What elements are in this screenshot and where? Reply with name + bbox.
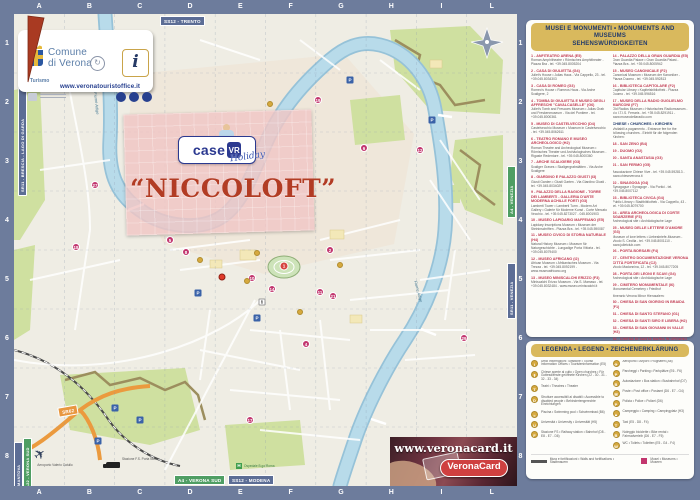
verona-tourist-map: ABCDEFGHIL ABCDEFGHIL 12345678 12345678 [0, 0, 700, 500]
train-station-icon [106, 462, 120, 468]
legend-label: Università • University • Universität (H… [541, 421, 597, 425]
legend-item: ✉Poste • Post office • Postamt (D6 - E7 … [613, 390, 690, 397]
grid-letter: L [467, 1, 517, 13]
grid-letter: C [115, 487, 165, 499]
legend-item: iUffici Informazioni Turistiche • Touris… [531, 360, 608, 368]
grid-number: 8 [516, 427, 525, 486]
entry-title: 31 - CHIESA DI SANTO STEFANO (G1) [613, 312, 690, 316]
entry-body: Romeo's House • Romeos Haus - Via Arche … [531, 88, 608, 96]
monument-marker-17[interactable]: 17 [246, 416, 254, 424]
monument-entry: 29 - CIMITERO MONUMENTALE (I6)Monumental… [613, 283, 690, 291]
monument-entry: 8 - GIARDINO E PALAZZO GIUSTI (I3)Giusti… [531, 175, 608, 187]
monument-entry: 17 - MUSEO DELLA RADIO GUGLIELMO MARCONI… [613, 99, 690, 120]
grid-number: 3 [1, 132, 13, 191]
monument-entry: 2 - CASA DI GIULIETTA (G4)Juliet's House… [531, 69, 608, 81]
grid-letter: G [316, 1, 366, 13]
monument-entry: 13 - MUSEO MINISCALCHI ERIZZO (F3)Minisc… [531, 276, 608, 288]
park-marker[interactable]: P [95, 438, 102, 445]
monument-entry: 3 - CASA DI ROMEO (G3)Romeo's House • Ro… [531, 84, 608, 96]
monuments-header: MUSEI E MONUMENTI • MONUMENTS AND MUSEUM… [531, 23, 689, 51]
monument-entry: 9 - PALAZZO DELLA RAGIONE - TORRE DEI LA… [531, 190, 608, 215]
legend-item: FStazione FS • Railway station • Bahnhof… [531, 431, 608, 439]
monument-marker-29[interactable]: 29 [460, 334, 468, 342]
legend-label: Poste • Post office • Postamt (D6 - E7 -… [623, 390, 684, 394]
grid-number: 2 [516, 73, 525, 132]
monument-entry: 21 - SAN FERMO (G5) [613, 163, 690, 167]
grid-letter: D [165, 1, 215, 13]
legend-label: Autostazione • Bus station • Busbahnhof … [623, 380, 687, 384]
monument-entry: 31 - CHIESA DI SANTO STEFANO (G1) [613, 312, 690, 316]
entry-body: Roman Theatre and Archeological Museum •… [531, 146, 608, 158]
legend-extra: Musei • Museums • Museen [641, 458, 689, 466]
entry-body: Canonical Museum • Museum der Kanoniker … [613, 73, 690, 81]
monument-entry: 16 - BIBLIOTECA CAPITOLARE (F2)Capitular… [613, 84, 690, 96]
entry-title: 24 - AREA ARCHEOLOGICA DI CORTE SGARZERI… [613, 211, 690, 220]
bus-icon: B [613, 380, 620, 387]
monument-marker-6[interactable]: 6 [360, 144, 368, 152]
entry-body: Roman Amphitheatre • Römisches Amphithea… [531, 58, 608, 66]
monument-entry: Associazione Chiese Vive - tel. +39.045.… [613, 170, 690, 178]
monument-entry: 30 - CHIESA DI SAN GIORGIO IN BRAIDA (F1… [613, 300, 690, 309]
monument-entry: 6 - TEATRO ROMANO E MUSEO ARCHEOLOGICO (… [531, 137, 608, 158]
entry-body: African Museum • Afrikanisches Museum - … [531, 261, 608, 273]
monument-marker-12[interactable]: 12 [416, 146, 424, 154]
entry-body: Monumental Cemetery • Friedhof [613, 287, 690, 291]
legend-item: BAutostazione • Bus station • Busbahnhof… [613, 380, 690, 387]
monuments-column-1: 1 - ANFITEATRO ARENA (E5)Roman Amphithea… [531, 54, 608, 342]
plane-icon: ✈ [613, 360, 620, 367]
legend-item: ≈Piscina • Swimming pool • Schwimmbad (B… [531, 411, 608, 418]
church-icon: ✝ [531, 371, 538, 378]
entry-body: Museum of love letters • Liebesbriefe-Mu… [613, 235, 690, 247]
legend-item: TTaxi (E5 - D8 - F4) [613, 421, 690, 428]
entry-title: 9 - PALAZZO DELLA RAGIONE - TORRE DEI LA… [531, 190, 608, 203]
sign-sr11-venezia: SR11 - VENEZIA [507, 263, 516, 319]
monument-entry: Itinerario Verona Minor Hierusalem: [613, 294, 690, 298]
grid-rows-right: 12345678 [516, 14, 525, 486]
grid-number: 3 [516, 132, 525, 191]
hospital-label: Ospedale B.go Roma [244, 464, 274, 468]
tourist-info-icon: i [122, 49, 149, 77]
monument-marker-2[interactable]: 2 [326, 246, 334, 254]
monument-entry: 7 - ARCHE SCALIGERE (G3)Scaliger Graves … [531, 160, 608, 172]
entry-title: 17 - MUSEO DELLA RADIO GUGLIELMO MARCONI… [613, 99, 690, 108]
grid-letter: G [316, 487, 366, 499]
airport-label: Aeroporto Valerio Catullo [20, 464, 90, 468]
legend-column-2: ✈Aeroporto • Airport • Flughafen (A8)PPa… [613, 360, 690, 453]
sign-modena: SS12 - MODENA [228, 475, 274, 485]
legend-label: Polizia • Police • Polizei (D6) [623, 400, 663, 404]
monument-entry: 18 - SAN ZENO (B4) [613, 142, 690, 146]
theatre-icon: T [531, 385, 538, 392]
grid-letter: F [265, 487, 315, 499]
gold-marker[interactable] [297, 309, 303, 315]
entry-body: Juliet's Tomb and Frescoes Museum • Juli… [531, 107, 608, 119]
grid-letter: D [165, 487, 215, 499]
bike-icon: B [613, 431, 620, 438]
park-marker[interactable]: P [112, 405, 119, 412]
grid-letter: A [14, 1, 64, 13]
monument-marker-21[interactable]: 21 [329, 292, 337, 300]
grid-number: 5 [1, 250, 13, 309]
monument-entry: 26 - PORTA BORSARI (F4) [613, 249, 690, 253]
entry-body: Juliet's House • Julias Haus - Via Cappe… [531, 73, 608, 81]
grid-letter: H [366, 1, 416, 13]
entry-title: 30 - CHIESA DI SAN GIORGIO IN BRAIDA (F1… [613, 300, 690, 309]
sign-trento: SS12 - TRENTO [160, 16, 205, 26]
monument-entry: 19 - DUOMO (G2) [613, 149, 690, 153]
monument-marker-11[interactable]: 11 [316, 288, 324, 296]
grid-letter: E [215, 487, 265, 499]
location-arrow [14, 14, 59, 89]
monument-entry: CHIESE • CHURCHES • KIRCHENVisitabili a … [613, 122, 690, 139]
entry-title: 25 - MUSEO DELLE LETTERE D'AMORE (G3) [613, 226, 690, 235]
wc-icon: W [613, 442, 620, 449]
police-icon: P [613, 400, 620, 407]
grid-letter: B [64, 487, 114, 499]
university-icon: U [531, 421, 538, 428]
entry-title: 4 - TOMBA DI GIULIETTA E MUSEO DEGLI AFF… [531, 99, 608, 108]
grid-number: 7 [516, 368, 525, 427]
monument-marker-14[interactable]: 14 [268, 285, 276, 293]
entry-title: 18 - SAN ZENO (B4) [613, 142, 690, 146]
monument-marker-19[interactable]: 19 [314, 96, 322, 104]
monument-entry: 4 - TOMBA DI GIULIETTA E MUSEO DEGLI AFF… [531, 99, 608, 120]
grid-number: 1 [1, 14, 13, 73]
grid-letter: B [64, 1, 114, 13]
monument-marker-4[interactable]: 4 [302, 340, 310, 348]
legend-extras: Mura e fortificazioni • Walls and fortif… [531, 454, 689, 465]
monument-marker-1[interactable]: 1 [280, 262, 289, 271]
grid-letters-top: ABCDEFGHIL [14, 1, 517, 13]
entry-body: Visitabili a pagamento - Entrance fee fo… [613, 127, 690, 139]
grid-number: 2 [1, 73, 13, 132]
legend-item: ▲Campeggio • Camping • Campingplatz (H3) [613, 410, 690, 417]
sign-a4-venezia: A4 - VENEZIA [507, 166, 516, 218]
grid-letter: I [416, 1, 466, 13]
sign-brescia: SR11 - BRESCIA - LAGO DI GARDA [18, 88, 27, 196]
monument-entry: 22 - SINAGOGA (G4)Synagogue • Synagoge -… [613, 181, 690, 193]
monument-entry: 14 - PALAZZO DELLA GRAN GUARDIA (E5)Gran… [613, 54, 690, 66]
grid-letter: I [416, 487, 466, 499]
monument-entry: 11 - MUSEO CIVICO DI STORIA NATURALE (H4… [531, 233, 608, 254]
grid-letter: L [467, 487, 517, 499]
parking-icon: P [613, 370, 620, 377]
grid-number: 4 [1, 191, 13, 250]
veronacard-logo: VeronaCard [440, 459, 508, 477]
legend-extra: Mura e fortificazioni • Walls and fortif… [531, 458, 631, 466]
legend-item: BNoleggio biciclette • Bike rental • Fah… [613, 431, 690, 439]
legend-extra-label: Mura e fortificazioni • Walls and fortif… [550, 458, 632, 466]
legend-item: DStrutture accessibili ai disabili • Acc… [531, 396, 608, 408]
legend-label: Aeroporto • Airport • Flughafen (A8) [623, 360, 673, 364]
grid-letter: A [14, 487, 64, 499]
entry-title: 10 - MUSEO LAPIDARIO MAFFEIANO (E5) [531, 218, 608, 222]
entry-title: 20 - SANTA ANASTASIA (G3) [613, 156, 690, 160]
train-icon: F [531, 431, 538, 438]
entry-body: Public Library • Stadtbibliothek - Via C… [613, 200, 690, 208]
monument-marker-27[interactable]: 27 [91, 181, 99, 189]
grid-number: 5 [516, 250, 525, 309]
monument-entry: 25 - MUSEO DELLE LETTERE D'AMORE (G3)Mus… [613, 226, 690, 247]
entry-body: Miniscalchi Erizzo Museum - Via S. Mamas… [531, 280, 608, 288]
gold-marker[interactable] [267, 101, 273, 107]
hospital-icon: H [236, 463, 242, 469]
tourist-office-url[interactable]: www.veronatouristoffice.it [60, 83, 140, 90]
entry-note: Associazione Chiese Vive - tel. +39.045.… [613, 170, 690, 178]
monument-marker-5[interactable]: 5 [166, 236, 174, 244]
sign-a4-verona-sud: A4 - VERONA SUD [174, 475, 225, 485]
legend-label: WC • Toilets • Toiletten (E5 - G4 - F4) [623, 442, 675, 446]
grid-number: 6 [1, 309, 13, 368]
entry-body: Castelvecchio Museum • Museum in Castelv… [531, 126, 608, 134]
entry-title: 6 - TEATRO ROMANO E MUSEO ARCHEOLOGICO (… [531, 137, 608, 146]
gold-marker[interactable] [337, 262, 343, 268]
legend-item: TTeatri • Theatres • Theater [531, 385, 608, 392]
monument-entry: 5 - MUSEO DI CASTELVECCHIO (D4)Castelvec… [531, 122, 608, 134]
legend-item: UUniversità • University • Universität (… [531, 421, 608, 428]
city-map[interactable]: Fiume Adige Fiume Adige SS12 - TRENTO SR… [14, 14, 517, 486]
entry-body: Archeological site • Archäologische Lage [613, 219, 690, 223]
tent-icon: ▲ [613, 410, 620, 417]
monument-entry: 1 - ANFITEATRO ARENA (E5)Roman Amphithea… [531, 54, 608, 66]
gold-marker[interactable] [197, 257, 203, 263]
entry-title: 11 - MUSEO CIVICO DI STORIA NATURALE (H4… [531, 233, 608, 242]
entry-body: Natural History Museum • Museum für Natu… [531, 242, 608, 254]
legend-label: Uffici Informazioni Turistiche • Tourist… [541, 360, 608, 368]
grid-rows-left: 12345678 [1, 14, 13, 486]
monument-entry: 20 - SANTA ANASTASIA (G3) [613, 156, 690, 160]
instagram-icon[interactable] [142, 92, 152, 102]
legend-column-1: iUffici Informazioni Turistiche • Touris… [531, 360, 608, 453]
legend-header: LEGENDA • LEGEND • ZEICHENERKLÄRUNG [531, 344, 689, 357]
taxi-icon: T [613, 421, 620, 428]
park-marker[interactable]: P [429, 117, 436, 124]
park-marker[interactable]: P [254, 315, 261, 322]
entry-title: 27 - CENTRO DOCUMENTAZIONE VERONA CITTÀ … [613, 256, 690, 265]
veronacard-url[interactable]: www.veronacard.it [390, 441, 517, 455]
pool-icon: ≈ [531, 411, 538, 418]
legend-label: Teatri • Theatres • Theater [541, 385, 578, 389]
facebook-icon[interactable] [116, 92, 126, 102]
grid-number: 4 [516, 191, 525, 250]
monument-entry: 24 - AREA ARCHEOLOGICA DI CORTE SGARZERI… [613, 211, 690, 224]
entry-body: Archeological site • Archäologische Lage [613, 276, 690, 280]
legend-item: PParcheggi • Parking • Parkplätze (E6 - … [613, 370, 690, 377]
niccoloft-location-dot[interactable] [219, 274, 226, 281]
legend-item: WWC • Toilets • Toiletten (E5 - G4 - F4) [613, 442, 690, 449]
entry-body: Lapidary Inscriptions Museum • Museum de… [531, 223, 608, 231]
gold-marker[interactable] [254, 250, 260, 256]
monument-entry: 33 - CHIESA DI SAN GIOVANNI IN VALLE (H3… [613, 326, 690, 335]
churches-subheader: CHIESE • CHURCHES • KIRCHEN [613, 122, 690, 126]
grid-letter: F [265, 1, 315, 13]
entry-title: 32 - CHIESA DI SANTI SIRO E LIBERA (H2) [613, 319, 690, 323]
legend-label: Stazione FS • Railway station • Bahnhof … [541, 431, 608, 439]
case-wordmark: case [193, 142, 225, 158]
legend-label: Strutture accessibili ai disabili • Acce… [541, 396, 608, 408]
legend-item: PPolizia • Police • Polizei (D6) [613, 400, 690, 407]
grid-letter: H [366, 487, 416, 499]
park-marker[interactable]: P [347, 77, 354, 84]
legend-label: Campeggio • Camping • Campingplatz (H3) [623, 410, 684, 414]
monument-entry: 10 - MUSEO LAPIDARIO MAFFEIANO (E5)Lapid… [531, 218, 608, 230]
twitter-icon[interactable] [129, 92, 139, 102]
entry-note: Itinerario Verona Minor Hierusalem: [613, 294, 690, 298]
gold-marker[interactable] [244, 278, 250, 284]
niccoloft-title: “NICCOLOFT” [130, 174, 315, 203]
entry-title: 19 - DUOMO (G2) [613, 149, 690, 153]
monument-entry: 15 - MUSEO CANONICALE (F2)Canonical Muse… [613, 69, 690, 81]
info-marker[interactable]: i [259, 299, 266, 306]
disabled-icon: D [531, 396, 538, 403]
partner-logos [28, 92, 76, 102]
monuments-panel: MUSEI E MONUMENTI • MONUMENTS AND MUSEUM… [526, 20, 694, 337]
veronacard-promo[interactable]: www.veronacard.it VeronaCard [390, 437, 517, 486]
park-marker[interactable]: P [137, 417, 144, 424]
info-icon: i [531, 360, 538, 367]
monument-entry: 27 - CENTRO DOCUMENTAZIONE VERONA CITTÀ … [613, 256, 690, 269]
entry-body: Synagogue • Synagoge - Via Portici - tel… [613, 185, 690, 193]
legend-item: ✝Chiese aperte al culto • Open churches … [531, 371, 608, 383]
entry-body: Vicolo Madonnina, 12 - tel. +39.045.8077… [613, 265, 690, 269]
grid-number: 8 [1, 427, 13, 486]
legend-label: Parcheggi • Parking • Parkplätze (E6 - F… [623, 370, 682, 374]
entry-body: Old Radios Museum • Historisches Radiomu… [613, 107, 690, 119]
entry-title: 26 - PORTA BORSARI (F4) [613, 249, 690, 253]
entry-title: 21 - SAN FERMO (G5) [613, 163, 690, 167]
legend-extra-label: Musei • Museums • Museen [650, 458, 689, 466]
grid-number: 1 [516, 14, 525, 73]
museum-square-swatch [641, 458, 647, 464]
monument-marker-8[interactable]: 8 [182, 248, 190, 256]
wall-line-swatch [531, 460, 547, 463]
entry-body: Gran Guardia Palace • Gran Guardia Palas… [613, 58, 690, 66]
entry-body: Lamberti Tower • Lamberti Turm - Modern … [531, 204, 608, 216]
legend-label: Noleggio biciclette • Bike rental • Fahr… [623, 431, 690, 439]
legend-item: ✈Aeroporto • Airport • Flughafen (A8) [613, 360, 690, 367]
grid-number: 6 [516, 309, 525, 368]
grid-letter: E [215, 1, 265, 13]
grid-letters-bottom: ABCDEFGHIL [14, 487, 517, 499]
monument-entry: 12 - MUSEO AFRICANO (I2)African Museum •… [531, 257, 608, 273]
recycle-icon: ↻ [90, 56, 105, 71]
monument-entry: 28 - PORTA DEI LEONI E SCAVI (G4)Archeol… [613, 272, 690, 280]
legend-label: Piscina • Swimming pool • Schwimmbad (B6… [541, 411, 605, 415]
entry-title: 33 - CHIESA DI SAN GIOVANNI IN VALLE (H3… [613, 326, 690, 335]
entry-body: Giusti Garden • Giusti Garten - Via Giar… [531, 180, 608, 188]
monuments-column-2: 14 - PALAZZO DELLA GRAN GUARDIA (E5)Gran… [613, 54, 690, 342]
sign-a22-verona-sud: A22 - VERONA SUD [23, 438, 32, 486]
legend-panel: LEGENDA • LEGEND • ZEICHENERKLÄRUNG iUff… [526, 341, 694, 479]
park-marker[interactable]: P [195, 290, 202, 297]
legend-label: Taxi (E5 - D8 - F4) [623, 421, 649, 425]
grid-number: 7 [1, 368, 13, 427]
entry-body: Scaliger Graves • Skaligergrabstätten - … [531, 165, 608, 173]
post-icon: ✉ [613, 390, 620, 397]
station-label: Stazione F.S. Porta Nuova [122, 458, 168, 462]
entry-body: Capitular Library • Kapitelsbibliothek -… [613, 88, 690, 96]
grid-letter: C [115, 1, 165, 13]
legend-label: Chiese aperte al culto • Open churches •… [541, 371, 608, 383]
monument-marker-18[interactable]: 18 [72, 243, 80, 251]
monument-entry: 32 - CHIESA DI SANTI SIRO E LIBERA (H2) [613, 319, 690, 323]
monument-entry: 23 - BIBLIOTECA CIVICA (G4)Public Librar… [613, 196, 690, 208]
